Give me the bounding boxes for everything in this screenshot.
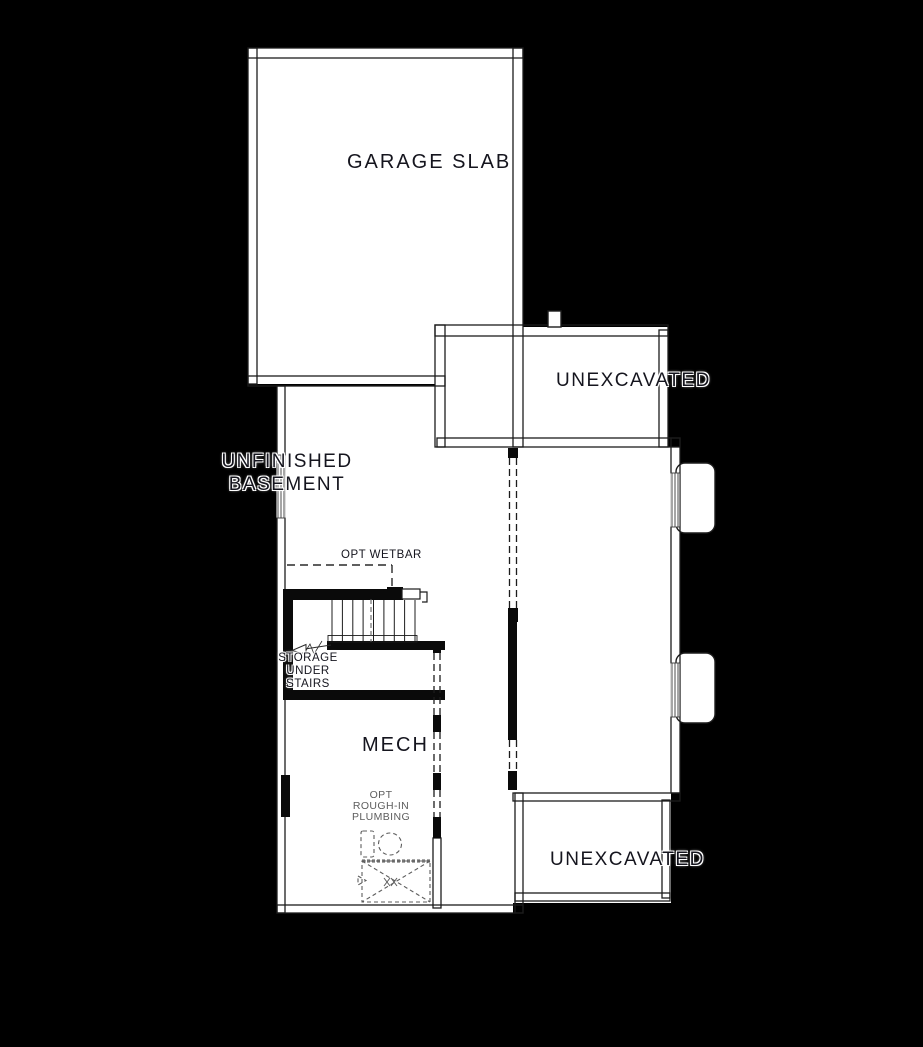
mech-wall-post-1	[433, 643, 441, 653]
right-window-top	[671, 473, 680, 527]
label-opt-wetbar: OPT WETBAR	[341, 549, 422, 561]
label-storage-line2: UNDER	[278, 665, 338, 678]
window-well-top	[676, 463, 715, 533]
center-wall-solid	[508, 622, 517, 740]
label-unexcavated-lower: UNEXCAVATED	[550, 849, 705, 871]
future-room-area	[513, 447, 680, 793]
stair-wall-top	[283, 589, 403, 600]
unexcavated-lower-area	[513, 793, 671, 903]
mech-wall-post-3	[433, 773, 441, 790]
label-plumbing-line3: PLUMBING	[346, 812, 416, 823]
label-storage-line3: STAIRS	[278, 678, 338, 691]
label-opt-rough-in-plumbing: OPT ROUGH-IN PLUMBING	[346, 790, 416, 823]
mech-wall-post-2	[433, 715, 441, 732]
stair-wall-top-end-block	[387, 587, 403, 600]
label-unfinished-basement-line2: BASEMENT	[212, 473, 362, 496]
label-unexcavated-upper: UNEXCAVATED	[556, 370, 711, 392]
center-wall-post-mid	[508, 608, 518, 622]
mech-wall-post-4	[433, 817, 441, 838]
window-well-bottom	[676, 653, 715, 723]
window-wells	[676, 463, 715, 723]
center-wall-post-bottom	[508, 771, 517, 790]
label-storage-line1: STORAGE	[278, 652, 338, 665]
label-unfinished-basement-line1: UNFINISHED	[212, 450, 362, 473]
label-mech: MECH	[362, 734, 429, 757]
label-garage-slab: GARAGE SLAB	[347, 151, 511, 174]
left-wall-post	[281, 775, 290, 817]
center-wall-post-top	[508, 448, 518, 458]
label-unfinished-basement: UNFINISHED BASEMENT	[212, 450, 362, 496]
floorplan-page: GARAGE SLAB UNEXCAVATED UNFINISHED BASEM…	[0, 0, 923, 1047]
right-window-bottom	[671, 663, 680, 717]
storage-wall-bottom	[283, 690, 445, 700]
porch-post	[548, 311, 561, 327]
label-storage-under-stairs: STORAGE UNDER STAIRS	[278, 652, 338, 691]
